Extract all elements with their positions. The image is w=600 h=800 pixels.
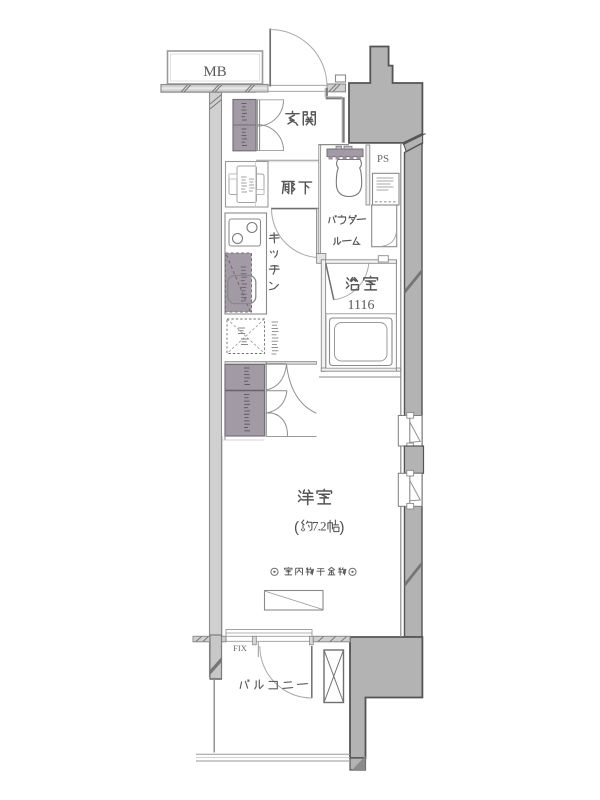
svg-text:1116: 1116 xyxy=(348,298,375,313)
svg-text:FIX: FIX xyxy=(233,643,247,653)
svg-text:MB: MB xyxy=(203,64,226,80)
svg-text:(: ( xyxy=(294,519,299,536)
svg-text:): ) xyxy=(340,519,345,536)
svg-text:PS: PS xyxy=(377,153,389,165)
svg-text:7.2: 7.2 xyxy=(312,519,327,534)
